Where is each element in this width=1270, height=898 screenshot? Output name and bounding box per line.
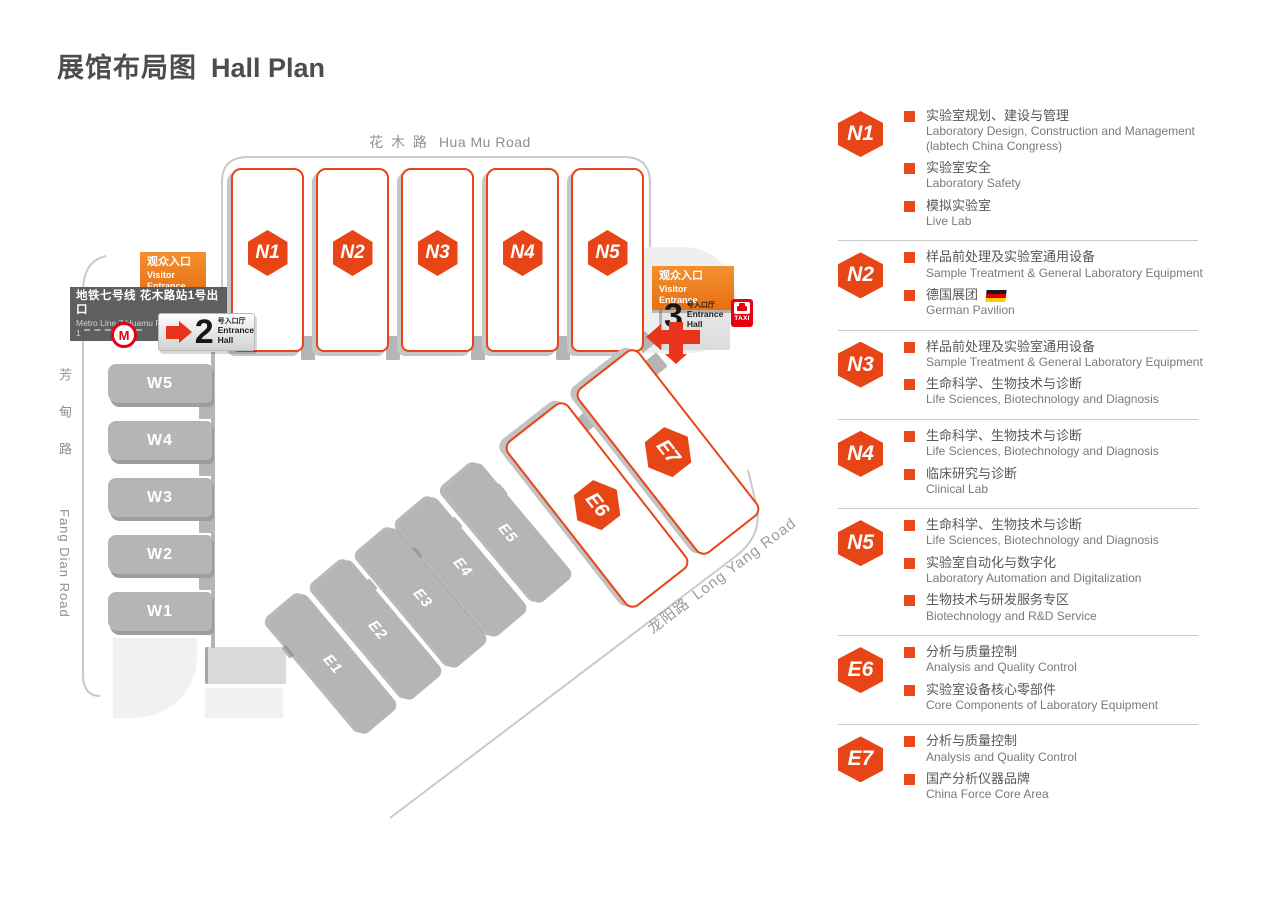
legend-item-zh: 模拟实验室 <box>926 198 1209 214</box>
hall-connector <box>199 463 212 476</box>
hall-n4: N4 <box>486 168 559 352</box>
bullet-icon <box>904 469 915 480</box>
legend-items: 分析与质量控制 Analysis and Quality Control 实验室… <box>904 644 1209 719</box>
legend-item-text: 实验室自动化与数字化 Laboratory Automation and Dig… <box>926 555 1209 586</box>
road-label-longyang-zh: 龙阳路 <box>645 595 694 637</box>
legend-item: 生物技术与研发服务专区 Biotechnology and R&D Servic… <box>904 592 1209 623</box>
legend-section-n2: N2 样品前处理及实验室通用设备 Sample Treatment & Gene… <box>838 240 1198 329</box>
legend-item-zh: 生物技术与研发服务专区 <box>926 592 1209 608</box>
legend-item: 生命科学、生物技术与诊断 Life Sciences, Biotechnolog… <box>904 428 1209 459</box>
hall-w4: W4 <box>108 421 212 460</box>
legend-badge-column: E6 <box>838 644 904 719</box>
legend-item-text: 样品前处理及实验室通用设备 Sample Treatment & General… <box>926 249 1209 280</box>
road-label-fangdian-en: Fang Dian Road <box>57 509 72 618</box>
entrance-arrow-icon <box>166 326 179 339</box>
legend-item-en: Live Lab <box>926 214 1209 228</box>
hall-n2: N2 <box>316 168 389 352</box>
hall-w1: W1 <box>108 592 212 631</box>
legend-item-zh: 实验室设备核心零部件 <box>926 682 1209 698</box>
legend-badge-column: N3 <box>838 339 904 414</box>
entrance-hall-2: 2 号入口厅 Entrance Hall <box>158 313 255 351</box>
legend-badge-column: N4 <box>838 428 904 503</box>
bullet-icon <box>904 685 915 696</box>
legend-item-text: 国产分析仪器品牌 China Force Core Area <box>926 771 1209 802</box>
legend-item-zh: 样品前处理及实验室通用设备 <box>926 249 1209 265</box>
legend-badge-column: N2 <box>838 249 904 324</box>
legend-item-text: 分析与质量控制 Analysis and Quality Control <box>926 733 1209 764</box>
hall-plan-page: 展馆布局图Hall Plan 花 木 路Hua Mu Road 芳甸路Fang … <box>0 0 1270 898</box>
entrance-hall-2-label: 号入口厅 Entrance Hall <box>218 318 254 346</box>
bullet-icon <box>904 595 915 606</box>
hall-w3: W3 <box>108 478 212 517</box>
road-label-huamu: 花 木 路Hua Mu Road <box>335 132 565 152</box>
bullet-icon <box>904 431 915 442</box>
legend-hall-badge-e6: E6 <box>838 647 883 693</box>
legend-hall-badge-n2: N2 <box>838 252 883 298</box>
legend-section-e6: E6 分析与质量控制 Analysis and Quality Control … <box>838 635 1198 724</box>
legend-item-text: 样品前处理及实验室通用设备 Sample Treatment & General… <box>926 339 1209 370</box>
legend-item-zh: 实验室安全 <box>926 160 1209 176</box>
legend-items: 样品前处理及实验室通用设备 Sample Treatment & General… <box>904 339 1209 414</box>
legend-section-n4: N4 生命科学、生物技术与诊断 Life Sciences, Biotechno… <box>838 419 1198 508</box>
legend-item: 临床研究与诊断 Clinical Lab <box>904 466 1209 497</box>
legend-section-e7: E7 分析与质量控制 Analysis and Quality Control … <box>838 724 1198 813</box>
legend-item-text: 生命科学、生物技术与诊断 Life Sciences, Biotechnolog… <box>926 517 1209 548</box>
legend-item-en: Laboratory Design, Construction and Mana… <box>926 124 1209 153</box>
taxi-car-icon <box>734 302 750 314</box>
road-label-huamu-zh: 花 木 路 <box>369 134 429 150</box>
legend-item: 德国展团 German Pavilion <box>904 287 1209 318</box>
legend-section-n1: N1 实验室规划、建设与管理 Laboratory Design, Constr… <box>838 100 1198 240</box>
legend-item-en: Sample Treatment & General Laboratory Eq… <box>926 355 1209 369</box>
bullet-icon <box>904 342 915 353</box>
hall-badge-n5: N5 <box>588 230 628 276</box>
hall-connector <box>199 406 212 419</box>
legend-item-text: 德国展团 German Pavilion <box>926 287 1209 318</box>
legend-item-en: Life Sciences, Biotechnology and Diagnos… <box>926 392 1209 406</box>
legend-items: 生命科学、生物技术与诊断 Life Sciences, Biotechnolog… <box>904 517 1209 630</box>
road-label-fangdian-zh: 芳甸路 <box>57 368 72 479</box>
legend-hall-badge-e7: E7 <box>838 736 883 782</box>
legend-item-zh: 实验室规划、建设与管理 <box>926 108 1209 124</box>
legend-item-en: German Pavilion <box>926 303 1209 317</box>
legend-hall-badge-n1: N1 <box>838 111 883 157</box>
entrance-hall-2-number: 2 <box>195 315 214 349</box>
legend-item-zh: 分析与质量控制 <box>926 733 1209 749</box>
legend-item-en: Clinical Lab <box>926 482 1209 496</box>
legend-item-en: Life Sciences, Biotechnology and Diagnos… <box>926 533 1209 547</box>
legend-item: 实验室规划、建设与管理 Laboratory Design, Construct… <box>904 108 1209 153</box>
hall-badge-e6: E6 <box>563 472 630 538</box>
legend-item-en: Sample Treatment & General Laboratory Eq… <box>926 266 1209 280</box>
legend-hall-badge-n5: N5 <box>838 520 883 566</box>
legend-section-n3: N3 样品前处理及实验室通用设备 Sample Treatment & Gene… <box>838 330 1198 419</box>
legend-section-n5: N5 生命科学、生物技术与诊断 Life Sciences, Biotechno… <box>838 508 1198 635</box>
taxi-label: TAXI <box>734 315 750 322</box>
legend-item: 样品前处理及实验室通用设备 Sample Treatment & General… <box>904 249 1209 280</box>
legend-item-text: 模拟实验室 Live Lab <box>926 198 1209 229</box>
legend-item-zh: 生命科学、生物技术与诊断 <box>926 517 1209 533</box>
legend-item-text: 生命科学、生物技术与诊断 Life Sciences, Biotechnolog… <box>926 376 1209 407</box>
legend-item-text: 实验室规划、建设与管理 Laboratory Design, Construct… <box>926 108 1209 153</box>
legend-item-zh: 临床研究与诊断 <box>926 466 1209 482</box>
hall-badge-n1: N1 <box>248 230 288 276</box>
bullet-icon <box>904 379 915 390</box>
legend-item-en: Laboratory Safety <box>926 176 1209 190</box>
service-block-southwest-2 <box>205 688 283 718</box>
legend-item-text: 分析与质量控制 Analysis and Quality Control <box>926 644 1209 675</box>
road-label-fangdian: 芳甸路Fang Dian Road <box>55 368 74 618</box>
legend-badge-column: N1 <box>838 108 904 235</box>
bullet-icon <box>904 558 915 569</box>
bullet-icon <box>904 163 915 174</box>
legend-item-en: China Force Core Area <box>926 787 1209 801</box>
legend-item-en: Analysis and Quality Control <box>926 750 1209 764</box>
bullet-icon <box>904 647 915 658</box>
metro-logo-icon: M <box>111 322 137 348</box>
entrance-arrow-head-icon <box>179 321 192 343</box>
hall-connector <box>199 520 212 533</box>
bullet-icon <box>904 111 915 122</box>
legend-item: 分析与质量控制 Analysis and Quality Control <box>904 733 1209 764</box>
visitor-entrance-west-zh: 观众入口 <box>147 256 199 270</box>
legend-badge-column: E7 <box>838 733 904 808</box>
legend-badge-column: N5 <box>838 517 904 630</box>
legend: N1 实验室规划、建设与管理 Laboratory Design, Constr… <box>838 100 1198 814</box>
legend-item: 实验室安全 Laboratory Safety <box>904 160 1209 191</box>
legend-item-zh: 生命科学、生物技术与诊断 <box>926 428 1209 444</box>
german-flag-icon <box>985 290 1006 302</box>
legend-items: 实验室规划、建设与管理 Laboratory Design, Construct… <box>904 108 1209 235</box>
legend-item: 国产分析仪器品牌 China Force Core Area <box>904 771 1209 802</box>
legend-item-en: Analysis and Quality Control <box>926 660 1209 674</box>
legend-hall-badge-n3: N3 <box>838 342 883 388</box>
road-label-huamu-en: Hua Mu Road <box>439 134 531 150</box>
hall-w2: W2 <box>108 535 212 574</box>
legend-item-zh: 德国展团 <box>926 287 1209 303</box>
hall-badge-n2: N2 <box>333 230 373 276</box>
legend-item: 样品前处理及实验室通用设备 Sample Treatment & General… <box>904 339 1209 370</box>
legend-item-text: 生物技术与研发服务专区 Biotechnology and R&D Servic… <box>926 592 1209 623</box>
legend-item-text: 临床研究与诊断 Clinical Lab <box>926 466 1209 497</box>
legend-item-zh: 分析与质量控制 <box>926 644 1209 660</box>
bullet-icon <box>904 290 915 301</box>
legend-item-zh: 样品前处理及实验室通用设备 <box>926 339 1209 355</box>
legend-item-zh: 国产分析仪器品牌 <box>926 771 1209 787</box>
bullet-icon <box>904 774 915 785</box>
legend-item-en: Laboratory Automation and Digitalization <box>926 571 1209 585</box>
hall-n5: N5 <box>571 168 644 352</box>
legend-item-en: Biotechnology and R&D Service <box>926 609 1209 623</box>
hall-badge-n3: N3 <box>418 230 458 276</box>
hall-w5: W5 <box>108 364 212 403</box>
entrance-direction-arrow-icon <box>640 318 710 370</box>
plaza-area-southwest <box>113 638 197 718</box>
legend-item: 生命科学、生物技术与诊断 Life Sciences, Biotechnolog… <box>904 376 1209 407</box>
hall-connector <box>199 577 212 590</box>
legend-item: 生命科学、生物技术与诊断 Life Sciences, Biotechnolog… <box>904 517 1209 548</box>
bullet-icon <box>904 201 915 212</box>
legend-item: 分析与质量控制 Analysis and Quality Control <box>904 644 1209 675</box>
legend-item-text: 生命科学、生物技术与诊断 Life Sciences, Biotechnolog… <box>926 428 1209 459</box>
hall-badge-n4: N4 <box>503 230 543 276</box>
taxi-icon: TAXI <box>731 299 753 327</box>
bullet-icon <box>904 252 915 263</box>
legend-items: 样品前处理及实验室通用设备 Sample Treatment & General… <box>904 249 1209 324</box>
legend-item-zh: 生命科学、生物技术与诊断 <box>926 376 1209 392</box>
legend-item: 模拟实验室 Live Lab <box>904 198 1209 229</box>
legend-item: 实验室自动化与数字化 Laboratory Automation and Dig… <box>904 555 1209 586</box>
legend-item-text: 实验室安全 Laboratory Safety <box>926 160 1209 191</box>
legend-hall-badge-n4: N4 <box>838 431 883 477</box>
legend-items: 分析与质量控制 Analysis and Quality Control 国产分… <box>904 733 1209 808</box>
bullet-icon <box>904 520 915 531</box>
visitor-entrance-east-zh: 观众入口 <box>659 270 727 284</box>
service-block-southwest <box>205 647 286 684</box>
hall-n3: N3 <box>401 168 474 352</box>
legend-item-text: 实验室设备核心零部件 Core Components of Laboratory… <box>926 682 1209 713</box>
legend-items: 生命科学、生物技术与诊断 Life Sciences, Biotechnolog… <box>904 428 1209 503</box>
legend-item: 实验室设备核心零部件 Core Components of Laboratory… <box>904 682 1209 713</box>
hall-badge-e7: E7 <box>634 419 701 485</box>
legend-item-en: Life Sciences, Biotechnology and Diagnos… <box>926 444 1209 458</box>
legend-item-zh: 实验室自动化与数字化 <box>926 555 1209 571</box>
bullet-icon <box>904 736 915 747</box>
entrance-hall-2-en2: Hall <box>218 336 254 346</box>
legend-item-en: Core Components of Laboratory Equipment <box>926 698 1209 712</box>
